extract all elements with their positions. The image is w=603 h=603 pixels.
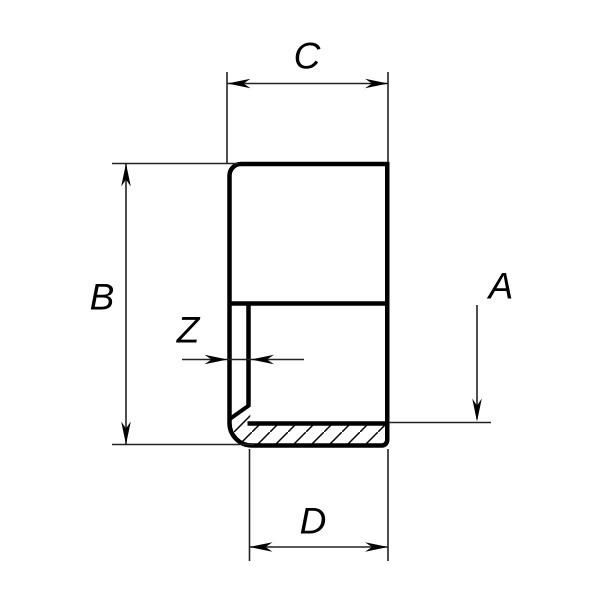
- technical-drawing: C B Z A D: [0, 0, 603, 603]
- drawing-canvas: C B Z A D: [0, 0, 603, 603]
- dim-c-label: C: [294, 36, 321, 77]
- dim-d-label: D: [300, 501, 327, 542]
- dim-a-label: A: [487, 266, 514, 307]
- dim-z-label: Z: [176, 310, 201, 351]
- dim-b-label: B: [90, 277, 115, 318]
